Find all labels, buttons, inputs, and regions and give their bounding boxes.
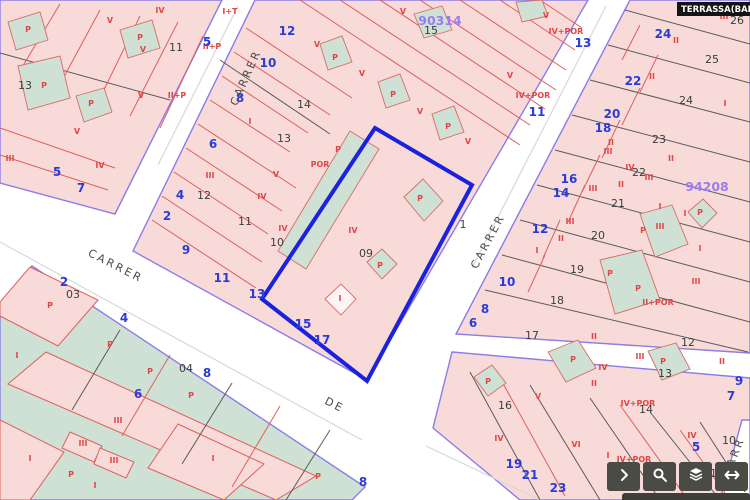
street-number: 4 <box>120 311 128 325</box>
street-number: 8 <box>481 302 489 316</box>
construction-label: I <box>607 451 610 460</box>
parcel-number: 12 <box>197 189 211 202</box>
construction-label: IV <box>257 192 267 201</box>
parcel-number: 20 <box>591 229 605 242</box>
parcel-number: 11 <box>169 41 183 54</box>
construction-label: II <box>591 332 597 341</box>
parcel-number: 23 <box>652 133 666 146</box>
construction-label: V <box>507 71 514 80</box>
parcel-number: 13 <box>658 367 672 380</box>
construction-label: III <box>110 456 119 465</box>
construction-label: P <box>107 340 113 349</box>
street-number: 19 <box>506 457 523 471</box>
construction-label: V <box>74 127 81 136</box>
layers-icon <box>688 467 704 487</box>
construction-label: III <box>566 217 575 226</box>
street-number: 9 <box>735 374 743 388</box>
construction-label: I <box>29 454 32 463</box>
construction-label: POR <box>311 160 330 169</box>
construction-label: IV <box>155 6 165 15</box>
cadastral-map-viewer: IVVPPVVPPVIVIIII+TII+PII+PVVPVPVPVVIV+PO… <box>0 0 750 500</box>
construction-label: I <box>339 294 342 303</box>
street-number: 6 <box>469 316 477 330</box>
construction-label: P <box>390 90 396 99</box>
street-number: 6 <box>134 387 142 401</box>
construction-label: P <box>332 53 338 62</box>
parcel-number: 22 <box>632 166 646 179</box>
construction-label: I <box>699 244 702 253</box>
parcel-number: 16 <box>498 399 512 412</box>
construction-label: I <box>536 246 539 255</box>
street-number: 13 <box>249 287 266 301</box>
construction-label: V <box>417 107 424 116</box>
construction-label: III <box>656 222 665 231</box>
toolbar-row-partial[interactable] <box>622 493 750 500</box>
parcel-number: 11 <box>238 215 252 228</box>
parcel-number: 25 <box>705 53 719 66</box>
construction-label: V <box>359 69 366 78</box>
construction-label: P <box>445 122 451 131</box>
map-toolbar <box>607 462 750 491</box>
construction-label: II <box>558 234 564 243</box>
parcel-number: 14 <box>297 98 311 111</box>
construction-label: III <box>604 147 613 156</box>
construction-label: V <box>138 91 145 100</box>
construction-label: P <box>417 194 423 203</box>
construction-label: II+POR <box>642 298 673 307</box>
street-number: 11 <box>214 271 231 285</box>
construction-label: II <box>608 138 614 147</box>
construction-label: IV+POR <box>516 91 551 100</box>
street-number: 16 <box>561 172 578 186</box>
chevron-right-icon <box>616 467 632 487</box>
street-number: 21 <box>522 468 539 482</box>
construction-label: III <box>206 171 215 180</box>
cadastral-map[interactable]: IVVPPVVPPVIVIIII+TII+PII+PVVPVPVPVVIV+PO… <box>0 0 750 500</box>
construction-label: V <box>465 137 472 146</box>
construction-label: P <box>640 226 646 235</box>
parcel-number: 19 <box>570 263 584 276</box>
parcel-number: 14 <box>639 403 653 416</box>
parcel-number: 12 <box>681 336 695 349</box>
construction-label: P <box>607 269 613 278</box>
construction-label: P <box>137 33 143 42</box>
parcel-number: 1 <box>460 218 467 231</box>
parcel-number: 09 <box>359 247 373 260</box>
construction-label: II <box>673 36 679 45</box>
parcel-number: 13 <box>277 132 291 145</box>
street-number: 2 <box>60 275 68 289</box>
construction-label: III <box>589 184 598 193</box>
construction-label: II <box>618 180 624 189</box>
street-number: 22 <box>625 74 642 88</box>
parcel-number: 03 <box>66 288 80 301</box>
construction-label: P <box>315 472 321 481</box>
street-number: 15 <box>295 317 312 331</box>
construction-label: IV <box>278 224 288 233</box>
construction-label: V <box>140 45 147 54</box>
construction-label: IV <box>494 434 504 443</box>
construction-label: III <box>114 416 123 425</box>
cadastral-block-id: 90314 <box>418 13 462 28</box>
construction-label: III <box>636 352 645 361</box>
parcel-number: 13 <box>18 79 32 92</box>
street-number: 18 <box>595 121 612 135</box>
construction-label: P <box>47 301 53 310</box>
construction-label: III <box>692 277 701 286</box>
street-number: 2 <box>163 209 171 223</box>
street-number: 4 <box>176 188 184 202</box>
magnifier-icon <box>652 467 668 487</box>
construction-label: I+T <box>222 7 238 16</box>
street-number: 7 <box>77 181 85 195</box>
construction-label: P <box>147 367 153 376</box>
construction-label: IV+POR <box>549 27 584 36</box>
street-number: 24 <box>655 27 672 41</box>
construction-label: V <box>273 170 280 179</box>
construction-label: V <box>543 11 550 20</box>
street-number: 10 <box>499 275 516 289</box>
construction-label: P <box>188 391 194 400</box>
parcel-number: 21 <box>611 197 625 210</box>
parcel-number: 24 <box>679 94 693 107</box>
street-number: 10 <box>260 56 277 70</box>
construction-label: I <box>94 481 97 490</box>
parcel-number: 17 <box>525 329 539 342</box>
construction-label: V <box>535 392 542 401</box>
construction-label: P <box>660 357 666 366</box>
construction-label: P <box>335 145 341 154</box>
street-number: 12 <box>279 24 296 38</box>
construction-label: P <box>377 261 383 270</box>
construction-label: II+P <box>168 91 187 100</box>
parcel-number: 04 <box>179 362 193 375</box>
construction-label: V <box>107 16 114 25</box>
construction-label: P <box>697 208 703 217</box>
construction-label: II <box>591 379 597 388</box>
construction-label: III <box>79 439 88 448</box>
arrows-horizontal-icon <box>724 467 740 487</box>
street-number: 6 <box>209 137 217 151</box>
toolbar-button-expand[interactable] <box>607 462 640 491</box>
municipality-label: TERRASSA(BARCEL <box>677 2 750 16</box>
construction-label: II <box>668 154 674 163</box>
construction-label: VI <box>571 440 580 449</box>
construction-label: I <box>724 99 727 108</box>
construction-label: II <box>719 357 725 366</box>
construction-label: IV <box>687 431 697 440</box>
street-number: 23 <box>550 481 567 495</box>
street-number: 9 <box>182 243 190 257</box>
construction-label: P <box>570 355 576 364</box>
street-number: 5 <box>53 165 61 179</box>
construction-label: P <box>485 377 491 386</box>
construction-label: V <box>400 7 407 16</box>
street-number: 5 <box>692 440 700 454</box>
street-number: 14 <box>553 186 570 200</box>
street-number: 17 <box>314 333 331 347</box>
construction-label: I <box>684 209 687 218</box>
construction-label: I <box>212 454 215 463</box>
street-number: 12 <box>532 222 549 236</box>
construction-label: P <box>88 99 94 108</box>
construction-label: P <box>635 284 641 293</box>
construction-label: I <box>249 117 252 126</box>
construction-label: IV <box>598 363 608 372</box>
street-number: 7 <box>727 389 735 403</box>
street-number: 11 <box>529 105 546 119</box>
construction-label: III <box>6 154 15 163</box>
parcel-number: 10 <box>270 236 284 249</box>
construction-label: P <box>25 25 31 34</box>
municipality-label-text: TERRASSA(BARCEL <box>681 5 750 15</box>
construction-label: V <box>314 40 321 49</box>
construction-label: IV <box>95 161 105 170</box>
street-number: 20 <box>604 107 621 121</box>
toolbar-button-pan-horizontal[interactable] <box>715 462 748 491</box>
construction-label: I <box>16 351 19 360</box>
parcel-number: 18 <box>550 294 564 307</box>
street-number: 8 <box>359 475 367 489</box>
construction-label: P <box>68 470 74 479</box>
street-name-label: DE <box>323 394 347 415</box>
cadastral-block-id: 94208 <box>685 179 729 194</box>
street-number: 13 <box>575 36 592 50</box>
toolbar-button-layers[interactable] <box>679 462 712 491</box>
toolbar-button-search[interactable] <box>643 462 676 491</box>
street-number: 5 <box>203 35 211 49</box>
construction-label: IV <box>348 226 358 235</box>
construction-label: II <box>649 72 655 81</box>
construction-label: I <box>659 202 662 211</box>
street-number: 8 <box>203 366 211 380</box>
construction-label: P <box>41 81 47 90</box>
